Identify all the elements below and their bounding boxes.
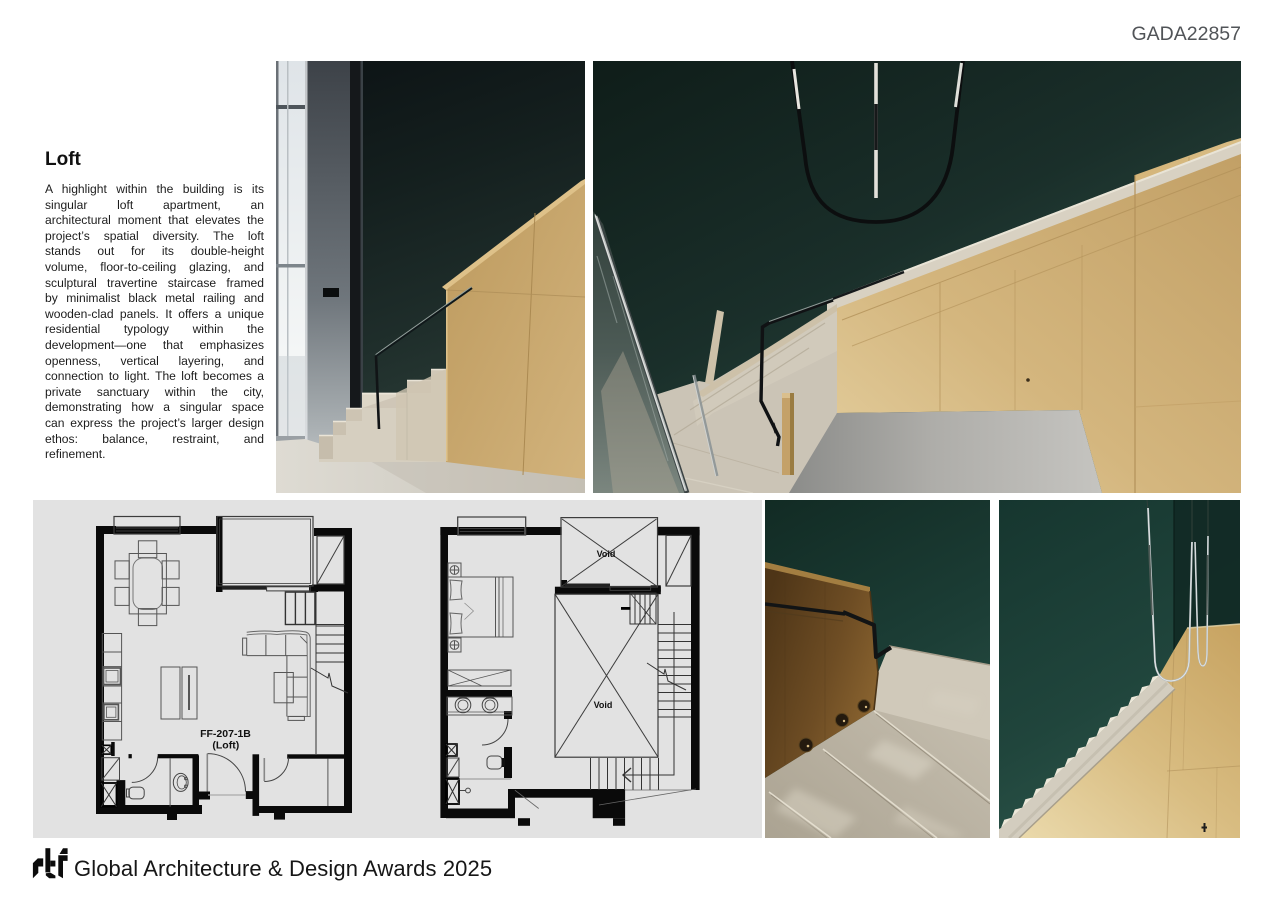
svg-text:(Loft): (Loft): [212, 740, 239, 752]
svg-text:Void: Void: [597, 549, 616, 559]
svg-text:FF-207-1B: FF-207-1B: [200, 728, 251, 740]
svg-text:Void: Void: [594, 700, 613, 710]
